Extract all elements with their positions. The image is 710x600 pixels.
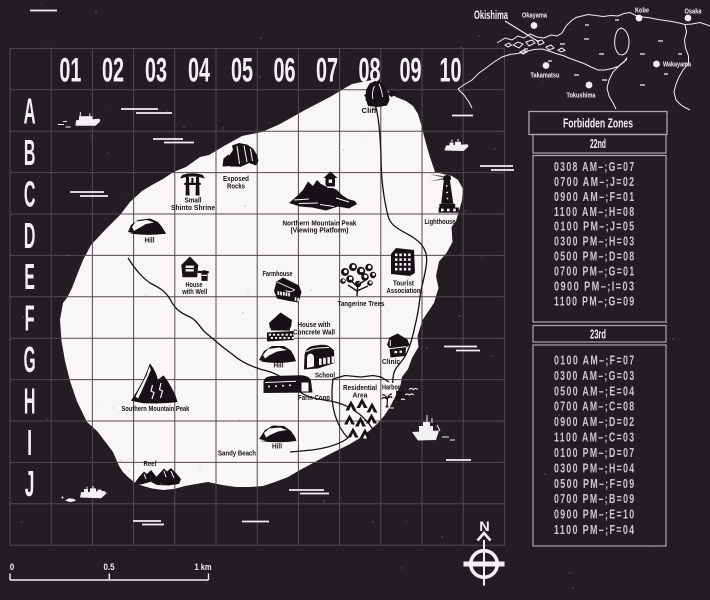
svg-text:23rd: 23rd	[590, 327, 606, 342]
svg-text:0700 PM–;G=01: 0700 PM–;G=01	[554, 264, 636, 279]
svg-text:04: 04	[188, 52, 210, 90]
svg-text:(Viewing Platform): (Viewing Platform)	[291, 226, 349, 235]
svg-text:N: N	[479, 519, 490, 534]
svg-text:01: 01	[59, 52, 81, 90]
svg-text:05: 05	[231, 52, 253, 90]
svg-text:1100 PM–;G=09: 1100 PM–;G=09	[554, 293, 636, 308]
svg-text:0700 PM–;B=09: 0700 PM–;B=09	[554, 491, 636, 506]
svg-text:Area: Area	[353, 391, 369, 400]
svg-text:02: 02	[102, 52, 124, 90]
svg-text:Sandy Beach: Sandy Beach	[218, 449, 256, 458]
svg-text:Reef: Reef	[144, 459, 157, 468]
svg-text:E: E	[24, 256, 35, 297]
svg-text:Forbidden Zones: Forbidden Zones	[563, 116, 633, 131]
svg-text:B: B	[24, 132, 36, 173]
svg-text:1100 AM–;C=03: 1100 AM–;C=03	[554, 430, 636, 445]
svg-text:0300 PM–;H=03: 0300 PM–;H=03	[554, 234, 636, 249]
svg-text:Okishima: Okishima	[474, 10, 508, 22]
svg-text:0308 AM–;G=07: 0308 AM–;G=07	[554, 159, 636, 174]
svg-text:10: 10	[440, 52, 462, 90]
svg-text:A: A	[24, 91, 36, 132]
svg-text:0: 0	[10, 562, 15, 572]
svg-text:F: F	[25, 298, 35, 339]
svg-text:0.5: 0.5	[104, 562, 115, 572]
svg-text:03: 03	[145, 52, 167, 90]
svg-text:0100 AM–;F=07: 0100 AM–;F=07	[554, 353, 636, 368]
svg-text:Tangerine Trees: Tangerine Trees	[338, 299, 385, 308]
svg-text:Farm Coop: Farm Coop	[298, 393, 330, 402]
svg-text:0900 PM–;E=10: 0900 PM–;E=10	[554, 507, 636, 522]
svg-text:School: School	[315, 371, 335, 380]
svg-text:0100 PM–;J=05: 0100 PM–;J=05	[554, 219, 636, 234]
svg-text:with Well: with Well	[181, 287, 207, 296]
svg-text:0300 PM–;H=04: 0300 PM–;H=04	[554, 460, 636, 475]
svg-text:0900 PM–;I=03: 0900 PM–;I=03	[554, 278, 636, 293]
svg-text:Association: Association	[387, 286, 421, 295]
svg-text:0100 PM–;D=07: 0100 PM–;D=07	[554, 445, 636, 460]
svg-text:1 km: 1 km	[195, 562, 212, 572]
svg-text:D: D	[24, 215, 36, 256]
svg-text:Shinto Shrine: Shinto Shrine	[171, 203, 215, 212]
svg-text:0300 AM–;G=03: 0300 AM–;G=03	[554, 368, 636, 383]
svg-text:H: H	[24, 380, 36, 421]
svg-text:Hill: Hill	[145, 236, 155, 245]
svg-text:0900 AM–;F=01: 0900 AM–;F=01	[554, 189, 636, 204]
svg-text:I: I	[27, 422, 32, 463]
svg-text:Takamatsu: Takamatsu	[531, 71, 560, 80]
svg-text:Wakayama: Wakayama	[663, 60, 692, 69]
svg-text:0500 PM–;D=08: 0500 PM–;D=08	[554, 249, 636, 264]
svg-text:Concrete Wall: Concrete Wall	[293, 328, 335, 337]
svg-text:Clinic: Clinic	[382, 357, 400, 366]
svg-text:Cliff: Cliff	[362, 106, 377, 115]
svg-text:Kobe: Kobe	[635, 6, 649, 15]
svg-text:C: C	[24, 173, 36, 214]
svg-text:Rocks: Rocks	[227, 182, 245, 191]
svg-text:06: 06	[274, 52, 296, 90]
svg-text:J: J	[25, 463, 35, 504]
svg-text:22nd: 22nd	[590, 136, 606, 151]
svg-text:0500 PM–;F=09: 0500 PM–;F=09	[554, 476, 636, 491]
svg-text:Harbor: Harbor	[382, 383, 400, 392]
svg-text:Hill: Hill	[272, 442, 282, 451]
svg-text:0700 AM–;J=02: 0700 AM–;J=02	[554, 174, 636, 189]
svg-text:Osaka: Osaka	[685, 7, 703, 16]
svg-text:1100 AM–;H=08: 1100 AM–;H=08	[554, 204, 636, 219]
svg-text:Lighthouse: Lighthouse	[425, 217, 456, 226]
svg-text:Southern Mountain Peak: Southern Mountain Peak	[121, 404, 190, 413]
svg-text:0500 AM–;E=04: 0500 AM–;E=04	[554, 383, 636, 398]
svg-text:Okayama: Okayama	[522, 11, 548, 20]
svg-text:07: 07	[316, 52, 338, 90]
svg-text:Hill: Hill	[274, 361, 284, 370]
svg-text:Farmhouse: Farmhouse	[263, 269, 293, 278]
svg-text:0700 AM–;C=08: 0700 AM–;C=08	[554, 399, 636, 414]
svg-text:0900 AM–;D=02: 0900 AM–;D=02	[554, 414, 636, 429]
svg-text:Tokushima: Tokushima	[567, 91, 597, 100]
svg-text:G: G	[24, 339, 36, 380]
svg-text:09: 09	[400, 52, 422, 90]
svg-text:1100 PM–;F=04: 1100 PM–;F=04	[554, 522, 636, 537]
